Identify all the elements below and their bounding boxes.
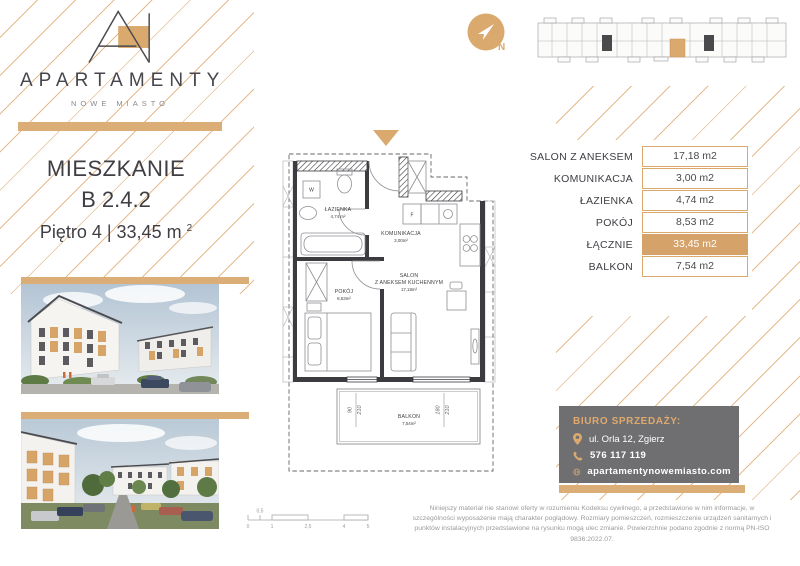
apartment-flyer: APARTAMENTY NOWE MIASTO MIESZKANIE B 2.4… [0, 0, 800, 566]
sales-office-heading: BIURO SPRZEDAŻY: [573, 416, 731, 427]
room-label-balkon: BALKON [398, 414, 420, 420]
apartment-type-label: MIESZKANIE [0, 156, 232, 182]
website-row[interactable]: apartamentynowemiasto.com [573, 466, 731, 477]
room-label-komunikacja: KOMUNIKACJA [381, 231, 421, 237]
room-label: BALKON [524, 261, 642, 273]
table-row: ŁAZIENKA 4,74 m2 [524, 191, 748, 210]
table-row: SALON Z ANEKSEM 17,18 m2 [524, 147, 748, 166]
apartment-title: MIESZKANIE B 2.4.2 Piętro 4 | 33,45 m 2 [0, 156, 232, 243]
table-row: KOMUNIKACJA 3,00 m2 [524, 169, 748, 188]
table-row: POKÓJ 8,53 m2 [524, 213, 748, 232]
room-area-pokoj: 8,53m² [337, 296, 351, 301]
phone-row[interactable]: 576 117 119 [573, 450, 731, 461]
bedroom-furniture [305, 263, 371, 371]
table-row-total: ŁĄCZNIE 33,45 m2 [524, 235, 748, 254]
scale-bar: 0,5 0 1 2,5 4 5 [246, 506, 370, 534]
neighbour-strip-left [283, 161, 293, 382]
website-url[interactable]: apartamentynowemiasto.com [587, 466, 731, 477]
floor-area-text: Piętro 4 | 33,45 m [40, 222, 182, 242]
room-label-salon: SALON [400, 273, 419, 279]
hatched-walls [297, 157, 462, 201]
brand-monogram-icon [72, 6, 168, 68]
area-table: SALON Z ANEKSEM 17,18 m2 KOMUNIKACJA 3,0… [524, 147, 748, 279]
compass: N [467, 13, 509, 61]
accent-bar-logo [18, 122, 222, 131]
phone-icon [573, 451, 583, 461]
brand-name: APARTAMENTY [20, 70, 220, 92]
property-boundary-dashed [289, 154, 493, 471]
floor-plan: ŁAZIENKA 4,74 m² W F KOMUNIKACJA 3,00m² … [281, 147, 497, 500]
sales-office-box: BIURO SPRZEDAŻY: ul. Orla 12, Zgierz 576… [559, 406, 739, 483]
window-dim-180: 180 [436, 404, 442, 414]
scale-tick-2: 2,5 [305, 524, 312, 530]
stair-core [704, 35, 714, 51]
window-dim-90: 90 [348, 406, 354, 413]
floor-area-label: Piętro 4 | 33,45 m 2 [0, 222, 232, 243]
building-render-photo-2 [21, 419, 219, 529]
building-render-photo-1 [21, 284, 219, 394]
legal-disclaimer: Niniejszy materiał nie stanowi oferty w … [408, 504, 776, 545]
building-floor-overview [532, 3, 792, 81]
room-area-value: 4,74 m2 [642, 190, 748, 211]
room-label-salon-2: Z ANEKSEM KUCHENNYM [375, 280, 443, 286]
window-dim-210b: 210 [445, 404, 451, 415]
total-label: ŁĄCZNIE [524, 239, 642, 251]
livingroom-furniture [391, 282, 479, 371]
location-pin-icon [573, 433, 582, 445]
room-area-salon: 17,18m² [401, 287, 418, 292]
address-row: ul. Orla 12, Zgierz [573, 433, 731, 445]
phone-number[interactable]: 576 117 119 [590, 450, 646, 461]
ventilation-shaft [408, 161, 426, 193]
compass-north-label: N [498, 42, 505, 53]
entrance-arrow-icon [373, 130, 399, 146]
address-text: ul. Orla 12, Zgierz [589, 434, 665, 445]
room-label: SALON Z ANEKSEM [524, 151, 642, 163]
washer-letter: W [309, 188, 314, 194]
room-area-komunikacja: 3,00m² [394, 238, 408, 243]
highlighted-unit [670, 39, 685, 57]
room-label-pokoj: POKÓJ [335, 288, 354, 295]
apartment-number: B 2.4.2 [0, 187, 232, 213]
accent-bar-contact [559, 485, 745, 493]
globe-icon [573, 467, 580, 477]
room-area-lazienka: 4,74 m² [331, 214, 346, 219]
neighbour-strip-right [485, 201, 495, 382]
dimension-lines [356, 393, 444, 427]
room-label: POKÓJ [524, 217, 642, 229]
area-superscript: 2 [187, 223, 193, 234]
fridge-letter: F [410, 213, 413, 219]
room-label-lazienka: ŁAZIENKA [325, 207, 352, 213]
scale-tick-0: 0 [247, 524, 250, 530]
brand-logo: APARTAMENTY NOWE MIASTO [20, 6, 220, 108]
brand-subtitle: NOWE MIASTO [20, 99, 220, 108]
accent-bar-photo1 [21, 277, 249, 284]
room-area-value: 3,00 m2 [642, 168, 748, 189]
total-area-value: 33,45 m2 [642, 234, 748, 255]
scale-label-half: 0,5 [257, 509, 264, 515]
room-label: ŁAZIENKA [524, 195, 642, 207]
scale-tick-3: 4 [343, 524, 346, 530]
scale-tick-4: 5 [367, 524, 370, 530]
scale-tick-1: 1 [271, 524, 274, 530]
room-area-value: 7,54 m2 [642, 256, 748, 277]
stair-core [602, 35, 612, 51]
room-area-balkon: 7,54m² [402, 421, 416, 426]
accent-bar-photo2 [21, 412, 249, 419]
room-area-value: 8,53 m2 [642, 212, 748, 233]
window-dim-210a: 210 [357, 404, 363, 415]
room-label: KOMUNIKACJA [524, 173, 642, 185]
room-area-value: 17,18 m2 [642, 146, 748, 167]
table-row: BALKON 7,54 m2 [524, 257, 748, 276]
